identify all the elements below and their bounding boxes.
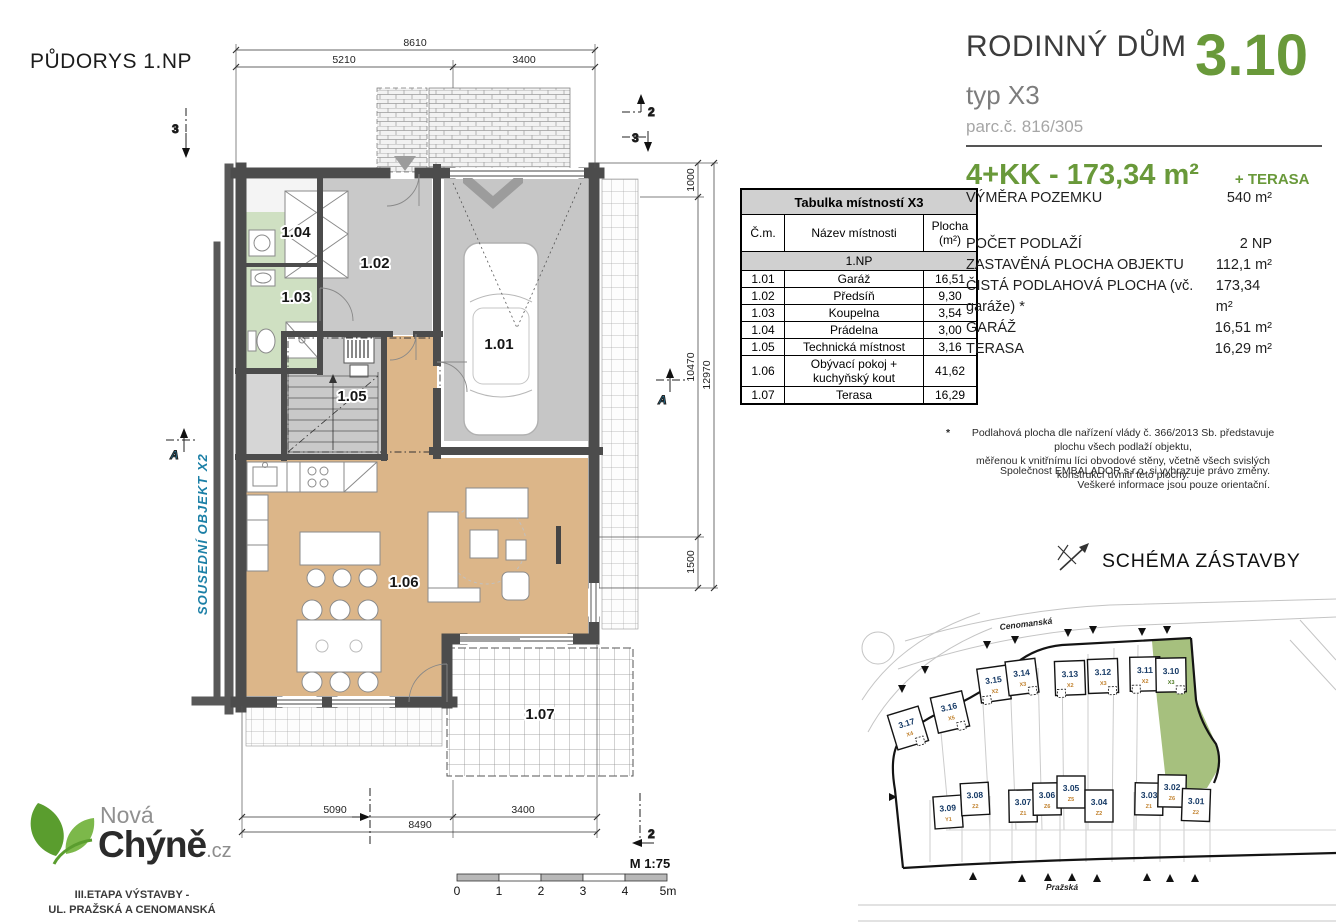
dim-top-total: 8610	[403, 37, 427, 49]
svg-text:X3: X3	[1168, 680, 1175, 686]
room-table-title: Tabulka místností X3	[741, 189, 977, 215]
site-house: 3.05 Z5	[1057, 776, 1085, 808]
logo: Nová Chýně.cz III.ETAPA VÝSTAVBY - UL. P…	[26, 798, 238, 920]
site-houses-top: 3.17 X4 3.16 X5 3.15 X2 3.14 X3	[887, 657, 1186, 752]
dining-table	[297, 600, 381, 692]
house-name: RODINNÝ DŮM	[966, 30, 1187, 64]
logo-text-chyne-main: Chýně	[98, 824, 206, 865]
etapa-line1: III.ETAPA VÝSTAVBY -	[26, 888, 238, 903]
tv	[556, 526, 561, 564]
detail-value: 16,29 m²	[1215, 339, 1272, 360]
header-panel: RODINNÝ DŮM 3.10 typ X3 parc.č. 816/305 …	[966, 30, 1322, 192]
kitchen-island	[300, 532, 380, 587]
room-label-1-05: 1.05	[337, 388, 366, 405]
detail-row: ČISTÁ PODLAHOVÁ PLOCHA (vč. garáže) * 17…	[966, 276, 1272, 318]
table-row: 1.04 Prádelna 3,00	[741, 322, 977, 339]
scale-tick: 0	[454, 884, 461, 898]
neighbor-building-label: SOUSEDNÍ OBJEKT X2	[195, 453, 210, 615]
site-house: 3.09 Y1	[933, 795, 963, 829]
site-house: 3.12 X3	[1087, 658, 1118, 695]
house-number: 3.10	[1195, 30, 1322, 82]
svg-text:3.03: 3.03	[1141, 790, 1158, 800]
svg-text:Z6: Z6	[1169, 796, 1176, 802]
cell-cm: 1.06	[741, 356, 785, 387]
street-label-top: Cenomanská	[999, 616, 1053, 632]
scale-tick: 2	[538, 884, 545, 898]
scale-bar	[457, 874, 667, 881]
dim-top-left: 5210	[332, 54, 356, 66]
svg-text:3.14: 3.14	[1013, 667, 1031, 679]
detail-row: GARÁŽ 16,51 m²	[966, 318, 1272, 339]
cell-cm: 1.03	[741, 305, 785, 322]
section-a-right: A	[657, 393, 667, 407]
detail-label: GARÁŽ	[966, 318, 1016, 339]
table-row: 1.03 Koupelna 3,54	[741, 305, 977, 322]
header-divider	[966, 145, 1322, 147]
site-house: 3.17 X4	[887, 706, 929, 752]
site-house: 3.08 Z2	[960, 782, 990, 815]
footnote-line1: Podlahová plocha dle nařízení vlády č. 3…	[964, 426, 1282, 454]
svg-text:3.12: 3.12	[1094, 667, 1111, 678]
floor-plan-drawing: 1.01 1.02 1.03 1.04 1.05 1.06 1.07 SOUSE…	[0, 0, 740, 922]
scale-tick: 5m	[660, 884, 677, 898]
site-plan-map: Cenomanská Pražská 3.17 X4 3.16 X5 3.15 …	[855, 596, 1336, 922]
svg-text:3.01: 3.01	[1188, 796, 1205, 807]
cell-area: 16,29	[924, 387, 978, 405]
dim-bot-total: 8490	[408, 819, 432, 831]
north-arrow-icon	[1052, 538, 1096, 582]
svg-text:X3: X3	[1019, 682, 1026, 689]
site-house: 3.04 Z2	[1085, 790, 1113, 822]
detail-row: TERASA 16,29 m²	[966, 339, 1272, 360]
svg-text:3.02: 3.02	[1164, 782, 1181, 792]
cell-name: Technická místnost	[785, 339, 924, 356]
section-3-right: 3	[632, 131, 639, 145]
site-house: 3.16 X5	[930, 691, 970, 735]
detail-label: TERASA	[966, 339, 1024, 360]
detail-label: ZASTAVĚNÁ PLOCHA OBJEKTU	[966, 255, 1184, 276]
etapa-line2: UL. PRAŽSKÁ A CENOMANSKÁ	[26, 903, 238, 918]
svg-text:X2: X2	[991, 688, 999, 695]
table-row: 1.06 Obývací pokoj + kuchyňský kout 41,6…	[741, 356, 977, 387]
site-house: 3.13 X2	[1054, 660, 1085, 697]
svg-text:X2: X2	[1142, 679, 1149, 685]
rights-line1: Společnost EMBALADOR s.r.o. si vyhrazuje…	[966, 464, 1270, 478]
page: 1.01 1.02 1.03 1.04 1.05 1.06 1.07 SOUSE…	[0, 0, 1336, 922]
scale-tick: 4	[622, 884, 629, 898]
room-label-1-03: 1.03	[281, 289, 310, 306]
svg-text:Z2: Z2	[1192, 810, 1199, 816]
cell-cm: 1.04	[741, 322, 785, 339]
cell-name: Terasa	[785, 387, 924, 405]
svg-text:Y1: Y1	[945, 817, 952, 823]
site-house: 3.01 Z2	[1181, 789, 1210, 822]
svg-text:Z1: Z1	[1146, 804, 1153, 810]
col-header-cm: Č.m.	[741, 215, 785, 252]
room-label-1-07: 1.07	[525, 706, 554, 723]
section-2-bottom: 2	[648, 827, 655, 841]
cell-name: Prádelna	[785, 322, 924, 339]
svg-text:Z5: Z5	[1068, 797, 1074, 803]
detail-value: 112,1 m²	[1216, 255, 1272, 276]
room-table-section: 1.NP	[741, 252, 977, 271]
page-title: PŮDORYS 1.NP	[30, 50, 192, 74]
dim-right-total: 12970	[701, 360, 713, 389]
section-3-left: 3	[172, 122, 179, 136]
site-house-highlighted: 3.10 X3	[1156, 658, 1187, 695]
cell-name: Obývací pokoj + kuchyňský kout	[785, 356, 924, 387]
dim-right-top: 1000	[685, 168, 697, 192]
cell-area: 41,62	[924, 356, 978, 387]
svg-text:3.10: 3.10	[1163, 666, 1180, 676]
svg-text:3.05: 3.05	[1063, 783, 1080, 793]
rights-line2: Veškeré informace jsou pouze orientační.	[966, 478, 1270, 492]
table-row: 1.05 Technická místnost 3,16	[741, 339, 977, 356]
cell-name: Koupelna	[785, 305, 924, 322]
detail-label: ČISTÁ PODLAHOVÁ PLOCHA (vč. garáže) *	[966, 276, 1216, 318]
svg-text:X3: X3	[1100, 681, 1107, 687]
property-details: VÝMĚRA POZEMKU 540 m² POČET PODLAŽÍ 2 NP…	[966, 188, 1272, 360]
dim-bot-left: 5090	[323, 804, 347, 816]
section-2-top: 2	[648, 105, 655, 119]
svg-text:3.07: 3.07	[1015, 797, 1032, 807]
dim-right-low: 1500	[685, 550, 697, 574]
svg-text:3.04: 3.04	[1091, 797, 1108, 807]
detail-value: 173,34 m²	[1216, 276, 1272, 318]
room-label-1-02: 1.02	[360, 255, 389, 272]
logo-leaves-icon	[26, 798, 98, 882]
dim-bot-right: 3400	[511, 804, 535, 816]
svg-text:3.11: 3.11	[1137, 665, 1154, 675]
detail-value: 2 NP	[1240, 234, 1272, 255]
table-row: 1.02 Předsíň 9,30	[741, 288, 977, 305]
cell-cm: 1.01	[741, 271, 785, 288]
detail-row: POČET PODLAŽÍ 2 NP	[966, 234, 1272, 255]
site-house: 3.14 X3	[1005, 658, 1039, 697]
svg-text:3.08: 3.08	[966, 790, 983, 801]
logo-text-chyne: Chýně.cz	[98, 824, 232, 866]
scale-ratio: M 1:75	[630, 856, 670, 871]
detail-label: POČET PODLAŽÍ	[966, 234, 1082, 255]
room-table: Tabulka místností X3 Č.m. Název místnost…	[740, 188, 978, 405]
terrace-suffix: + TERASA	[1235, 171, 1310, 188]
rights-note: Společnost EMBALADOR s.r.o. si vyhrazuje…	[966, 464, 1270, 492]
schema-heading: SCHÉMA ZÁSTAVBY	[1102, 550, 1301, 573]
svg-text:Z1: Z1	[1020, 811, 1027, 817]
parcel-number: parc.č. 816/305	[966, 117, 1322, 137]
svg-text:X2: X2	[1067, 683, 1074, 689]
cell-cm: 1.07	[741, 387, 785, 405]
svg-text:3.06: 3.06	[1039, 790, 1056, 800]
background-roads	[858, 599, 1336, 921]
svg-text:Z2: Z2	[1096, 811, 1102, 817]
svg-text:Z6: Z6	[1044, 804, 1051, 810]
col-header-name: Název místnosti	[785, 215, 924, 252]
detail-row: ZASTAVĚNÁ PLOCHA OBJEKTU 112,1 m²	[966, 255, 1272, 276]
detail-row: VÝMĚRA POZEMKU 540 m²	[966, 188, 1272, 209]
logo-text-cz: .cz	[206, 840, 232, 862]
logo-etapa-text: III.ETAPA VÝSTAVBY - UL. PRAŽSKÁ A CENOM…	[26, 888, 238, 918]
cell-name: Garáž	[785, 271, 924, 288]
site-houses-bottom: 3.09 Y1 3.08 Z2 3.07 Z1 3.06 Z6 3.05	[933, 775, 1211, 829]
room-label-1-04: 1.04	[281, 224, 311, 241]
street-label-bottom: Pražská	[1046, 882, 1078, 892]
table-row: 1.07 Terasa 16,29	[741, 387, 977, 405]
cell-cm: 1.05	[741, 339, 785, 356]
washing-machine	[249, 230, 275, 256]
room-label-1-06: 1.06	[389, 574, 418, 591]
detail-label: VÝMĚRA POZEMKU	[966, 188, 1102, 209]
svg-text:3.13: 3.13	[1061, 669, 1078, 680]
dim-top-right: 3400	[512, 54, 536, 66]
scale-tick: 1	[496, 884, 503, 898]
svg-text:Z2: Z2	[972, 804, 979, 810]
scale-tick: 3	[580, 884, 587, 898]
room-label-1-01: 1.01	[484, 336, 513, 353]
section-a-left: A	[169, 448, 179, 462]
svg-text:3.09: 3.09	[939, 802, 956, 813]
detail-value: 540 m²	[1227, 188, 1272, 209]
footnote-star: *	[946, 426, 950, 440]
dim-right-mid: 10470	[685, 352, 697, 381]
table-row: 1.01 Garáž 16,51	[741, 271, 977, 288]
cell-name: Předsíň	[785, 288, 924, 305]
detail-value: 16,51 m²	[1215, 318, 1272, 339]
cell-cm: 1.02	[741, 288, 785, 305]
